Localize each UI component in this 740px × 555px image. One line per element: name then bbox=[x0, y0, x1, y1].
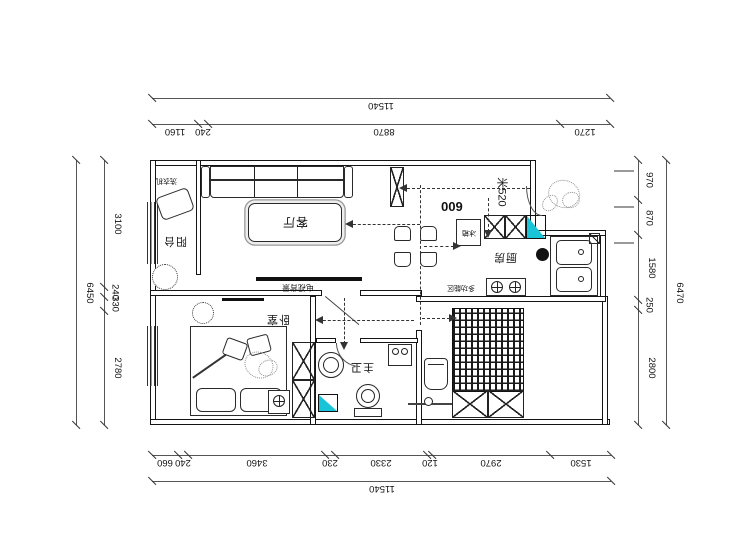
dim-line-top-segments: 116024088701270 bbox=[152, 124, 610, 140]
dim-segment: 6470 bbox=[666, 160, 682, 425]
floor-plan-canvas: 11540 116024088701270 660240346023023301… bbox=[0, 0, 740, 555]
washing-machine-label: 洗衣机 bbox=[156, 176, 177, 186]
dim-segment-label: 2780 bbox=[112, 357, 123, 378]
wall-hall-right bbox=[416, 330, 422, 425]
stove-burner bbox=[491, 281, 503, 293]
window-balcony bbox=[147, 202, 158, 264]
kitchen-sink bbox=[556, 267, 592, 292]
dim-segment: 3460 bbox=[188, 455, 326, 471]
flow-arrow-left bbox=[311, 316, 323, 324]
dim-segment: 870 bbox=[638, 200, 654, 236]
dim-segment: 8870 bbox=[208, 124, 560, 140]
dim-segment-label: 11540 bbox=[368, 100, 394, 111]
washbasin-inner bbox=[323, 357, 339, 373]
corridor-line bbox=[614, 170, 634, 172]
dim-segment: 3100 bbox=[104, 160, 120, 287]
flow-line bbox=[420, 185, 421, 325]
flow-line bbox=[424, 246, 454, 247]
dim-segment: 2780 bbox=[104, 311, 120, 425]
dim-segment-label: 3460 bbox=[246, 457, 267, 468]
entry-door-arc bbox=[526, 186, 542, 216]
wardrobe-x bbox=[292, 342, 315, 380]
dim-segment-label: 1160 bbox=[165, 126, 185, 137]
pot-icon bbox=[536, 248, 549, 261]
sofa-seat bbox=[210, 180, 344, 198]
dim-segment-label: 6450 bbox=[84, 282, 95, 303]
dim-segment-label: 2800 bbox=[646, 357, 657, 378]
dim-segment-label: 2970 bbox=[480, 457, 501, 468]
dining-chair bbox=[420, 226, 437, 241]
dim-segment: 11540 bbox=[152, 98, 610, 114]
dim-segment: 970 bbox=[638, 160, 654, 200]
dim-line-right-segments: 97087015802502800 bbox=[638, 160, 654, 425]
flue-box bbox=[589, 233, 600, 244]
dim-segment-label: 1530 bbox=[570, 457, 591, 468]
wardrobe-x bbox=[292, 380, 315, 418]
flow-arrow-down bbox=[484, 230, 492, 242]
flow-arrow-right bbox=[449, 314, 461, 322]
shoe-cabinet-x bbox=[488, 390, 524, 418]
dim-line-left-total: 6450 bbox=[76, 160, 92, 425]
water-heater bbox=[388, 344, 412, 366]
dining-chair bbox=[394, 226, 411, 241]
wall-bath-top-a bbox=[316, 338, 336, 343]
opening-600-label: 600 bbox=[441, 199, 463, 214]
balcony-label: 阳台 bbox=[163, 234, 187, 250]
sink-drain bbox=[578, 276, 584, 282]
dim-segment-label: 6470 bbox=[674, 282, 685, 303]
water-heater-dial bbox=[392, 348, 399, 355]
dim-segment-label: 8870 bbox=[373, 126, 394, 137]
dim-segment-label: 3100 bbox=[112, 213, 123, 234]
flow-line bbox=[422, 318, 450, 319]
nightstand-lamp bbox=[273, 395, 285, 407]
wall-right-lower bbox=[602, 296, 608, 425]
dim-segment: 1160 bbox=[152, 124, 198, 140]
dim-line-right-total: 6470 bbox=[666, 160, 682, 425]
wall-mid-right bbox=[360, 290, 422, 296]
dim-segment-label: 970 bbox=[643, 172, 654, 188]
dim-segment-label: 1580 bbox=[646, 257, 657, 278]
dim-segment-label: 11540 bbox=[369, 483, 395, 494]
kitchen-sink bbox=[556, 240, 592, 265]
dim-segment: 2970 bbox=[432, 455, 550, 471]
flow-line bbox=[318, 320, 414, 321]
toilet-bowl-inner bbox=[361, 389, 375, 403]
flow-line bbox=[348, 224, 420, 225]
flow-line bbox=[488, 198, 489, 232]
water-heater-dial bbox=[401, 348, 408, 355]
stove-burner bbox=[509, 281, 521, 293]
multi-function-label: 多功能区 bbox=[447, 283, 475, 293]
dim-segment-label: 870 bbox=[643, 210, 654, 226]
drying-rack bbox=[155, 187, 195, 221]
marker-triangle-cyan bbox=[526, 215, 546, 239]
dim-segment-label: 1270 bbox=[574, 126, 595, 137]
dining-chair bbox=[420, 252, 437, 267]
dim-line-top-total: 11540 bbox=[152, 98, 610, 114]
plant-icon bbox=[152, 264, 178, 290]
wall-bottom bbox=[150, 419, 610, 425]
dim-line-bottom-segments: 6602403460230233012029701530 bbox=[152, 455, 611, 471]
corridor-line bbox=[614, 242, 634, 244]
corridor-line bbox=[614, 206, 634, 208]
dim-segment: 1530 bbox=[550, 455, 611, 471]
dim-segment-label: 2330 bbox=[370, 457, 391, 468]
sofa-armrest bbox=[201, 166, 210, 198]
living-room-label: 客厅 bbox=[282, 214, 308, 231]
dim-line-bottom-total: 11540 bbox=[152, 481, 611, 497]
sofa-armrest bbox=[344, 166, 353, 198]
bedroom-curtain-bar bbox=[222, 298, 264, 301]
sink-drain bbox=[578, 249, 584, 255]
fridge-label: 冰箱 bbox=[462, 228, 476, 238]
storage-jar bbox=[424, 358, 448, 390]
window-bedroom bbox=[147, 326, 158, 386]
shoe-cabinet-x bbox=[452, 390, 488, 418]
tv-wall-label: 电视背景 bbox=[282, 282, 314, 293]
dim-line-left-segments: 31002403302780 bbox=[104, 160, 120, 425]
dim-segment-label: 660 bbox=[157, 457, 173, 468]
dim-segment: 2330 bbox=[335, 455, 428, 471]
flow-arrow-down bbox=[340, 342, 348, 354]
plant-icon bbox=[192, 302, 214, 324]
dim-segment: 2800 bbox=[638, 310, 654, 425]
flow-line bbox=[402, 188, 530, 189]
wall-kitchen-right bbox=[600, 230, 606, 302]
coffee-table: 客厅 bbox=[248, 203, 342, 242]
jar-lid-line bbox=[428, 364, 444, 365]
kitchen-label: 厨房 bbox=[493, 250, 517, 266]
sofa-back bbox=[210, 166, 344, 180]
dining-chair bbox=[394, 252, 411, 267]
dim-segment: 1270 bbox=[560, 124, 610, 140]
tiled-area bbox=[452, 308, 524, 392]
toilet-tank bbox=[354, 408, 382, 417]
dim-segment: 1580 bbox=[638, 235, 654, 300]
flow-arrow-left bbox=[395, 184, 407, 192]
flow-line bbox=[344, 298, 345, 344]
wall-bath-top-b bbox=[360, 338, 418, 343]
dim-segment: 11540 bbox=[152, 481, 611, 497]
note-520-label: 米520 bbox=[495, 177, 511, 206]
cabinet-x bbox=[505, 215, 526, 239]
marker-triangle-cyan bbox=[318, 394, 338, 412]
flow-arrow-right bbox=[453, 242, 465, 250]
tv-bar bbox=[256, 277, 362, 281]
dim-segment-label: 330 bbox=[109, 296, 120, 312]
wall-kitchen-bottom bbox=[416, 296, 606, 302]
bed-pillow bbox=[196, 388, 236, 412]
dim-segment: 6450 bbox=[76, 160, 92, 425]
floor-drain bbox=[424, 397, 433, 406]
flow-arrow-left bbox=[341, 220, 353, 228]
